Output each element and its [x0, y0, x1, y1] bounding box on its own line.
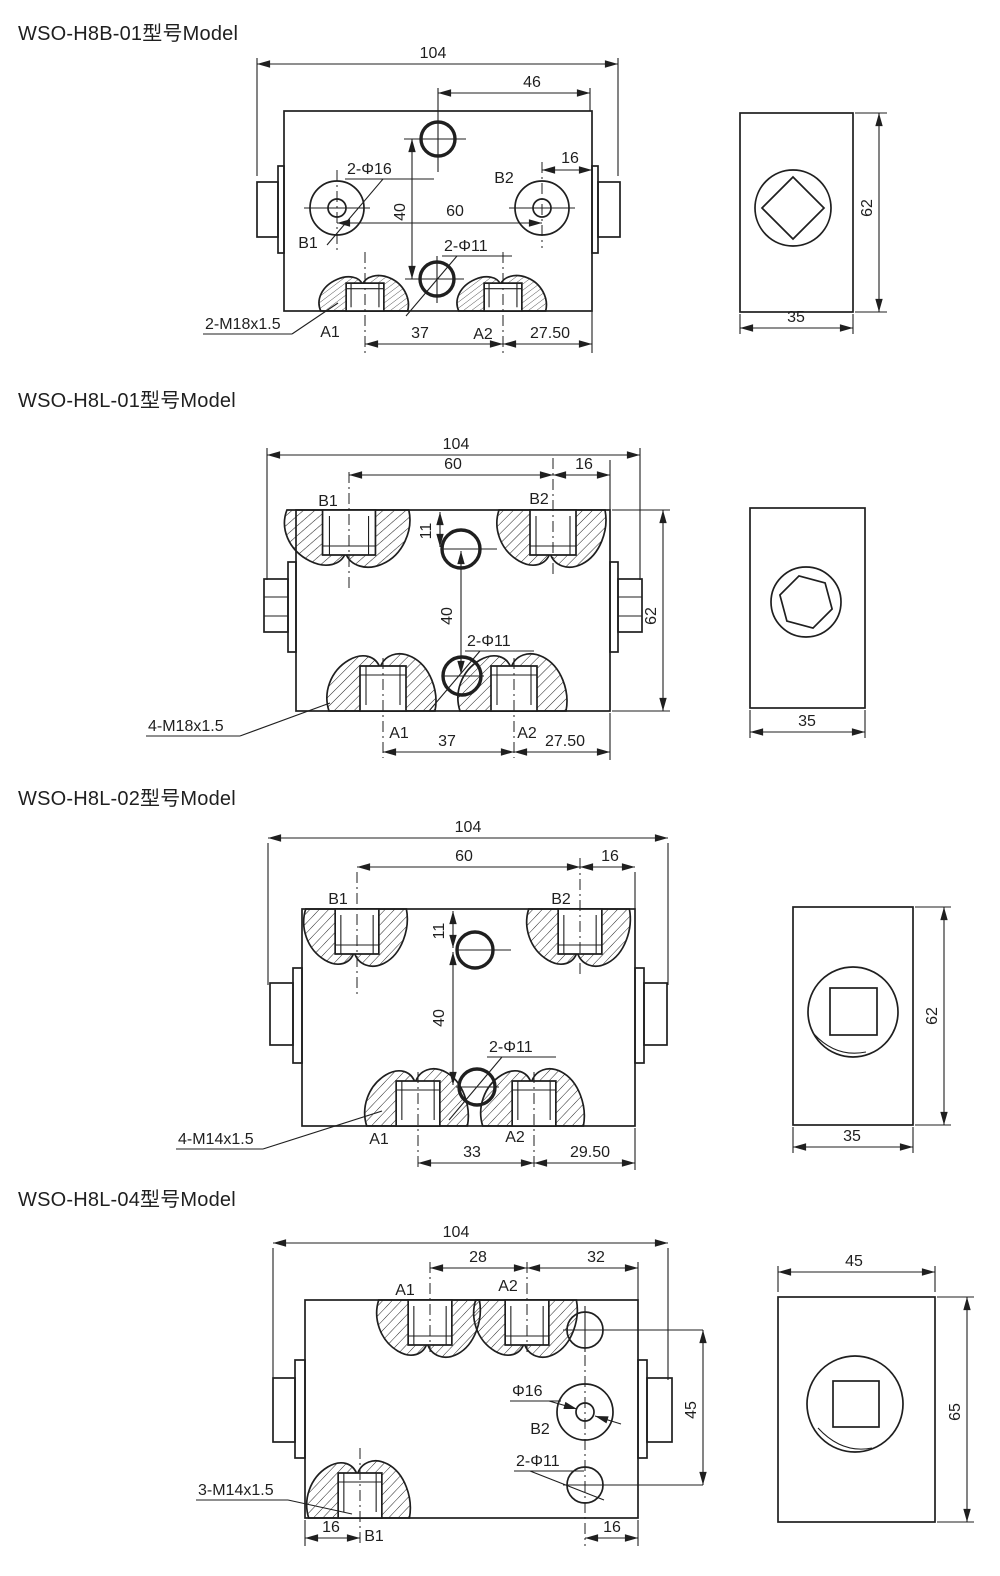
callout-thread: 4-M14x1.5 — [178, 1131, 254, 1148]
side-view: 45 65 — [778, 1253, 974, 1522]
dim-a-spacing: 28 — [469, 1249, 487, 1266]
model-title: WSO-H8L-02型号Model — [18, 787, 236, 810]
dim-b1-edge: 16 — [322, 1519, 340, 1536]
label-b1: B1 — [364, 1528, 384, 1545]
dim-hole-vertical: 40 — [439, 607, 456, 625]
dim-top-hole-offset: 46 — [523, 74, 541, 91]
dim-overall-width: 104 — [420, 45, 447, 62]
front-view — [273, 1262, 703, 1546]
dim-a2-edge: 27.50 — [530, 325, 570, 342]
label-b2: B2 — [530, 1421, 550, 1438]
dim-port-spacing: 60 — [446, 203, 464, 220]
dim-b2-edge: 16 — [603, 1519, 621, 1536]
callout-thread: 3-M14x1.5 — [198, 1482, 274, 1499]
dim-port-spacing: 60 — [455, 848, 473, 865]
callout-phi16: 2-Φ16 — [347, 161, 392, 178]
dim-a2-edge: 29.50 — [570, 1144, 610, 1161]
label-a1: A1 — [395, 1282, 415, 1299]
side-view: 35 — [750, 508, 865, 738]
callout-phi11: 2-Φ11 — [444, 238, 488, 255]
side-view: 62 35 — [793, 907, 951, 1153]
port-a2 — [457, 276, 546, 311]
dim-side-depth: 35 — [798, 713, 816, 730]
dim-side-height: 62 — [924, 1007, 941, 1025]
dim-hole-vertical: 40 — [392, 203, 409, 221]
dim-side-depth: 35 — [843, 1128, 861, 1145]
section-wso-h8l-01: WSO-H8L-01型号Model — [18, 389, 865, 760]
section-wso-h8l-02: WSO-H8L-02型号Model 104 60 — [18, 787, 951, 1170]
dim-overall-width: 104 — [443, 1224, 470, 1241]
callout-thread: 2-M18x1.5 — [205, 316, 281, 333]
dim-hole-offset: 11 — [431, 923, 448, 940]
callout-thread: 4-M18x1.5 — [148, 718, 224, 735]
model-title: WSO-H8B-01型号Model — [18, 22, 238, 45]
dim-side-depth: 35 — [787, 309, 805, 326]
valve-drawing-svg: WSO-H8B-01型号Model — [0, 0, 1000, 1576]
dim-a-spacing: 37 — [438, 733, 456, 750]
dim-b2-edge: 16 — [561, 150, 579, 167]
label-a1: A1 — [320, 324, 340, 341]
dim-a2-edge: 27.50 — [545, 733, 585, 750]
dim-body-height: 62 — [643, 607, 660, 625]
section-wso-h8l-04: WSO-H8L-04型号Model 104 — [18, 1188, 974, 1546]
callout-phi11: 2-Φ11 — [516, 1453, 560, 1470]
dim-overall-width: 104 — [455, 819, 482, 836]
dim-side-width: 45 — [845, 1253, 863, 1270]
callout-phi16: Φ16 — [512, 1383, 543, 1400]
front-view — [257, 88, 620, 355]
dim-port-spacing: 60 — [444, 456, 462, 473]
label-a2: A2 — [505, 1129, 525, 1146]
label-a1: A1 — [389, 725, 409, 742]
label-a2: A2 — [517, 725, 537, 742]
label-b2: B2 — [529, 491, 549, 508]
dim-overall-width: 104 — [443, 436, 470, 453]
label-a1: A1 — [369, 1131, 389, 1148]
callout-phi11: 2-Φ11 — [467, 633, 511, 650]
label-a2: A2 — [473, 326, 493, 343]
dim-a2-edge: 32 — [587, 1249, 605, 1266]
side-view: 62 35 — [740, 113, 887, 334]
drawing-sheet: WSO-H8B-01型号Model — [0, 0, 1000, 1576]
label-b1: B1 — [318, 493, 338, 510]
label-b1: B1 — [328, 891, 348, 908]
dim-side-height: 65 — [947, 1403, 964, 1421]
callout-phi11: 2-Φ11 — [489, 1039, 533, 1056]
dim-hole-offset: 11 — [418, 523, 435, 540]
model-title: WSO-H8L-01型号Model — [18, 389, 236, 412]
port-a1 — [319, 276, 408, 311]
dim-side-height: 62 — [859, 199, 876, 217]
section-wso-h8b-01: WSO-H8B-01型号Model — [18, 22, 887, 355]
dim-a-spacing: 33 — [463, 1144, 481, 1161]
dim-b2-edge: 16 — [601, 848, 619, 865]
dim-a-spacing: 37 — [411, 325, 429, 342]
dim-b2-edge: 16 — [575, 456, 593, 473]
label-b1: B1 — [298, 235, 318, 252]
label-b2: B2 — [551, 891, 571, 908]
label-a2: A2 — [498, 1278, 518, 1295]
dim-hole-span: 45 — [683, 1401, 700, 1419]
dim-hole-vertical: 40 — [431, 1009, 448, 1027]
label-b2: B2 — [494, 170, 514, 187]
model-title: WSO-H8L-04型号Model — [18, 1188, 236, 1211]
